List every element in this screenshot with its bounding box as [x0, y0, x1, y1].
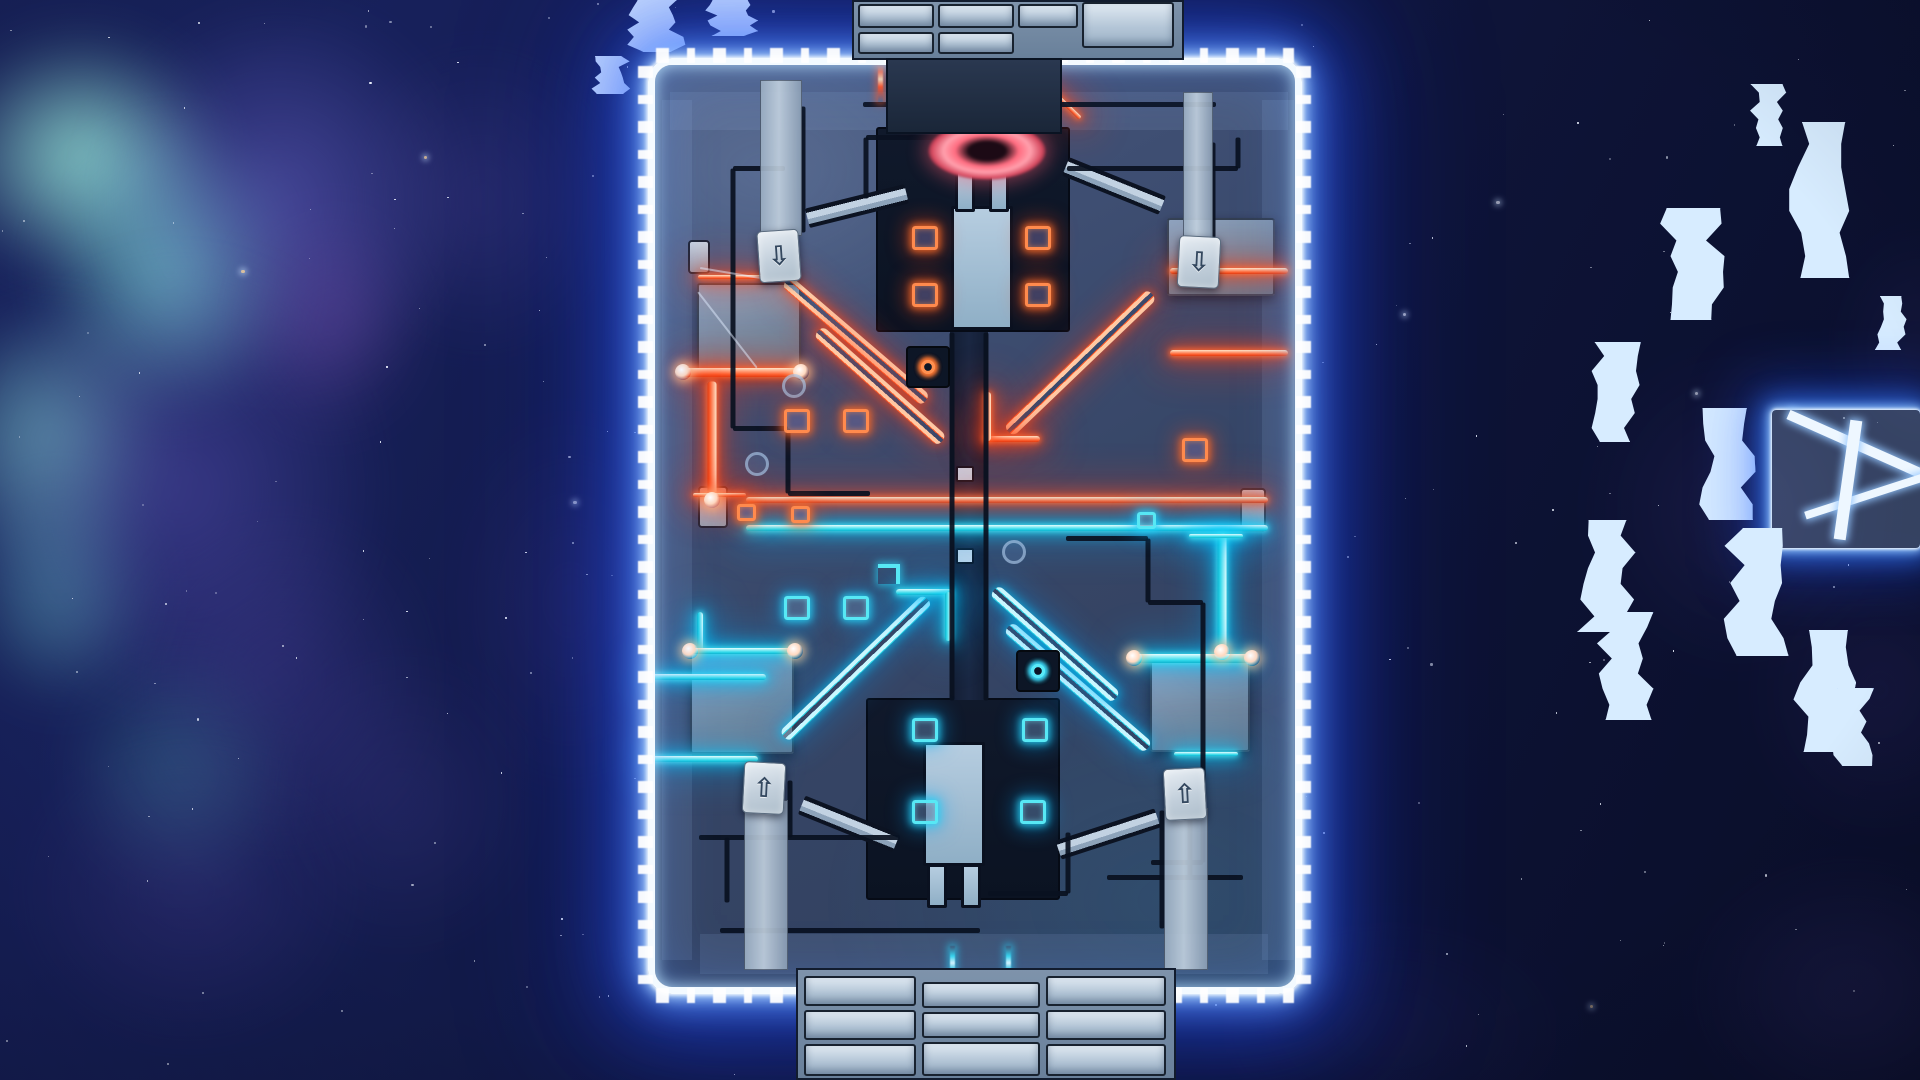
star	[546, 257, 547, 258]
debris-blob	[1782, 122, 1862, 278]
star	[369, 82, 371, 84]
star	[560, 935, 561, 936]
star	[1765, 874, 1767, 876]
star	[1663, 251, 1664, 252]
star	[368, 10, 369, 11]
star	[1590, 1005, 1593, 1008]
star	[411, 884, 413, 886]
star	[572, 542, 574, 544]
star	[1798, 59, 1799, 60]
star	[1580, 830, 1581, 831]
walkway	[744, 800, 788, 970]
star	[1496, 201, 1499, 204]
nebula-cloud	[1680, 850, 1920, 1080]
star	[675, 7, 676, 8]
border-crenellation	[638, 66, 653, 986]
star	[634, 432, 635, 433]
star	[1313, 46, 1314, 47]
star	[1893, 145, 1894, 146]
star	[597, 3, 598, 4]
star	[1403, 313, 1406, 316]
dock-panel	[1046, 1044, 1166, 1076]
star	[389, 21, 391, 23]
star	[1503, 114, 1504, 115]
walkway	[760, 80, 802, 236]
star	[1853, 990, 1854, 991]
star	[447, 197, 448, 198]
star	[1577, 122, 1578, 123]
nebula-cloud	[340, 40, 620, 360]
dock-panel	[922, 1012, 1040, 1038]
star	[1405, 498, 1406, 499]
debris-blob	[1745, 84, 1787, 146]
star	[186, 590, 187, 591]
elevator-pad-up[interactable]: ⇧	[742, 761, 787, 815]
elevator-pad-up[interactable]: ⇧	[1163, 767, 1208, 821]
debris-blob	[1772, 410, 1920, 548]
debris-blob	[622, 0, 688, 52]
star	[429, 558, 430, 559]
star	[1418, 802, 1420, 804]
star	[76, 671, 78, 673]
star	[1354, 536, 1355, 537]
star	[1521, 878, 1522, 879]
star	[1432, 237, 1433, 238]
star	[1376, 344, 1377, 345]
star	[1904, 90, 1905, 91]
star	[582, 934, 583, 935]
dock-panel	[938, 32, 1014, 54]
debris-blob	[700, 0, 758, 36]
star	[1515, 542, 1517, 544]
star	[474, 960, 475, 961]
star	[573, 501, 576, 504]
tower-block	[886, 58, 1062, 134]
dock-panel	[804, 1010, 916, 1040]
star	[192, 808, 193, 809]
star	[6, 1040, 8, 1042]
star	[599, 996, 600, 997]
dock-panel	[858, 32, 934, 54]
star	[241, 270, 244, 273]
star	[572, 657, 573, 658]
star	[1552, 509, 1554, 511]
star	[734, 1074, 735, 1075]
star	[341, 1010, 342, 1011]
star	[1556, 712, 1557, 713]
star	[154, 683, 155, 684]
star	[505, 617, 506, 618]
star	[1590, 267, 1591, 268]
star	[1609, 493, 1610, 494]
star	[434, 842, 436, 844]
star	[548, 17, 550, 19]
star	[1323, 832, 1324, 833]
star	[1430, 663, 1432, 665]
star	[363, 550, 364, 551]
star	[1729, 581, 1730, 582]
arrow-up-icon: ⇧	[1173, 778, 1197, 810]
game-viewport[interactable]: ⇩⇩⇧⇧	[0, 0, 1920, 1080]
star	[526, 986, 528, 988]
elevator-pad-down[interactable]: ⇩	[1177, 235, 1222, 289]
star	[1433, 489, 1434, 490]
star	[10, 30, 11, 31]
star	[1609, 158, 1611, 160]
star	[592, 175, 593, 176]
star	[147, 880, 148, 881]
star	[1476, 435, 1477, 436]
star	[1301, 24, 1302, 25]
star	[543, 381, 544, 382]
star	[627, 66, 628, 67]
star	[1597, 446, 1598, 447]
star	[539, 310, 540, 311]
star	[501, 772, 502, 773]
arrow-up-icon: ⇧	[752, 772, 776, 804]
border-crenellation	[1296, 66, 1311, 986]
star	[167, 1063, 169, 1065]
dock-panel	[938, 4, 1014, 28]
star	[386, 366, 387, 367]
star	[522, 213, 523, 214]
star	[430, 26, 432, 28]
star	[634, 778, 635, 779]
walkway	[1183, 92, 1213, 242]
star	[165, 603, 167, 605]
star	[1906, 889, 1907, 890]
star	[1409, 243, 1410, 244]
dock-panel	[804, 1044, 916, 1076]
star	[282, 645, 283, 646]
star	[365, 25, 367, 27]
arrow-down-icon: ⇩	[1187, 246, 1211, 278]
star	[1589, 662, 1590, 663]
star	[1407, 647, 1408, 648]
dock-panel	[1018, 4, 1078, 28]
star	[257, 521, 258, 522]
star	[1620, 940, 1621, 941]
debris-blob	[586, 56, 632, 94]
dock-panel	[1046, 976, 1166, 1006]
nebula-cloud	[250, 640, 550, 960]
elevator-pad-down[interactable]: ⇩	[756, 229, 802, 284]
star	[1347, 556, 1349, 558]
star	[1663, 945, 1664, 946]
debris-beam	[1804, 469, 1920, 520]
star	[1322, 362, 1323, 363]
dock-panel	[1046, 1010, 1166, 1040]
star	[1649, 20, 1650, 21]
dock-panel	[858, 4, 934, 28]
star	[447, 713, 448, 714]
star	[608, 995, 609, 996]
star	[275, 481, 276, 482]
dock-panel	[922, 982, 1040, 1008]
star	[568, 456, 570, 458]
dock-panel	[1082, 2, 1174, 48]
walkway	[1164, 808, 1208, 970]
star	[1644, 871, 1645, 872]
debris-blob	[1652, 208, 1726, 320]
star	[1664, 942, 1665, 943]
star	[1603, 659, 1605, 661]
arrow-down-icon: ⇩	[767, 240, 792, 273]
star	[1215, 1004, 1216, 1005]
star	[1396, 305, 1397, 306]
star	[561, 918, 562, 919]
dock-panel	[804, 976, 916, 1006]
dock-panel	[922, 1042, 1040, 1076]
star	[184, 107, 185, 108]
star	[1600, 803, 1601, 804]
star	[772, 10, 774, 12]
star	[1446, 953, 1447, 954]
star	[1734, 124, 1735, 125]
star	[394, 199, 395, 200]
star	[1666, 156, 1668, 158]
star	[1389, 659, 1390, 660]
star	[215, 592, 217, 594]
